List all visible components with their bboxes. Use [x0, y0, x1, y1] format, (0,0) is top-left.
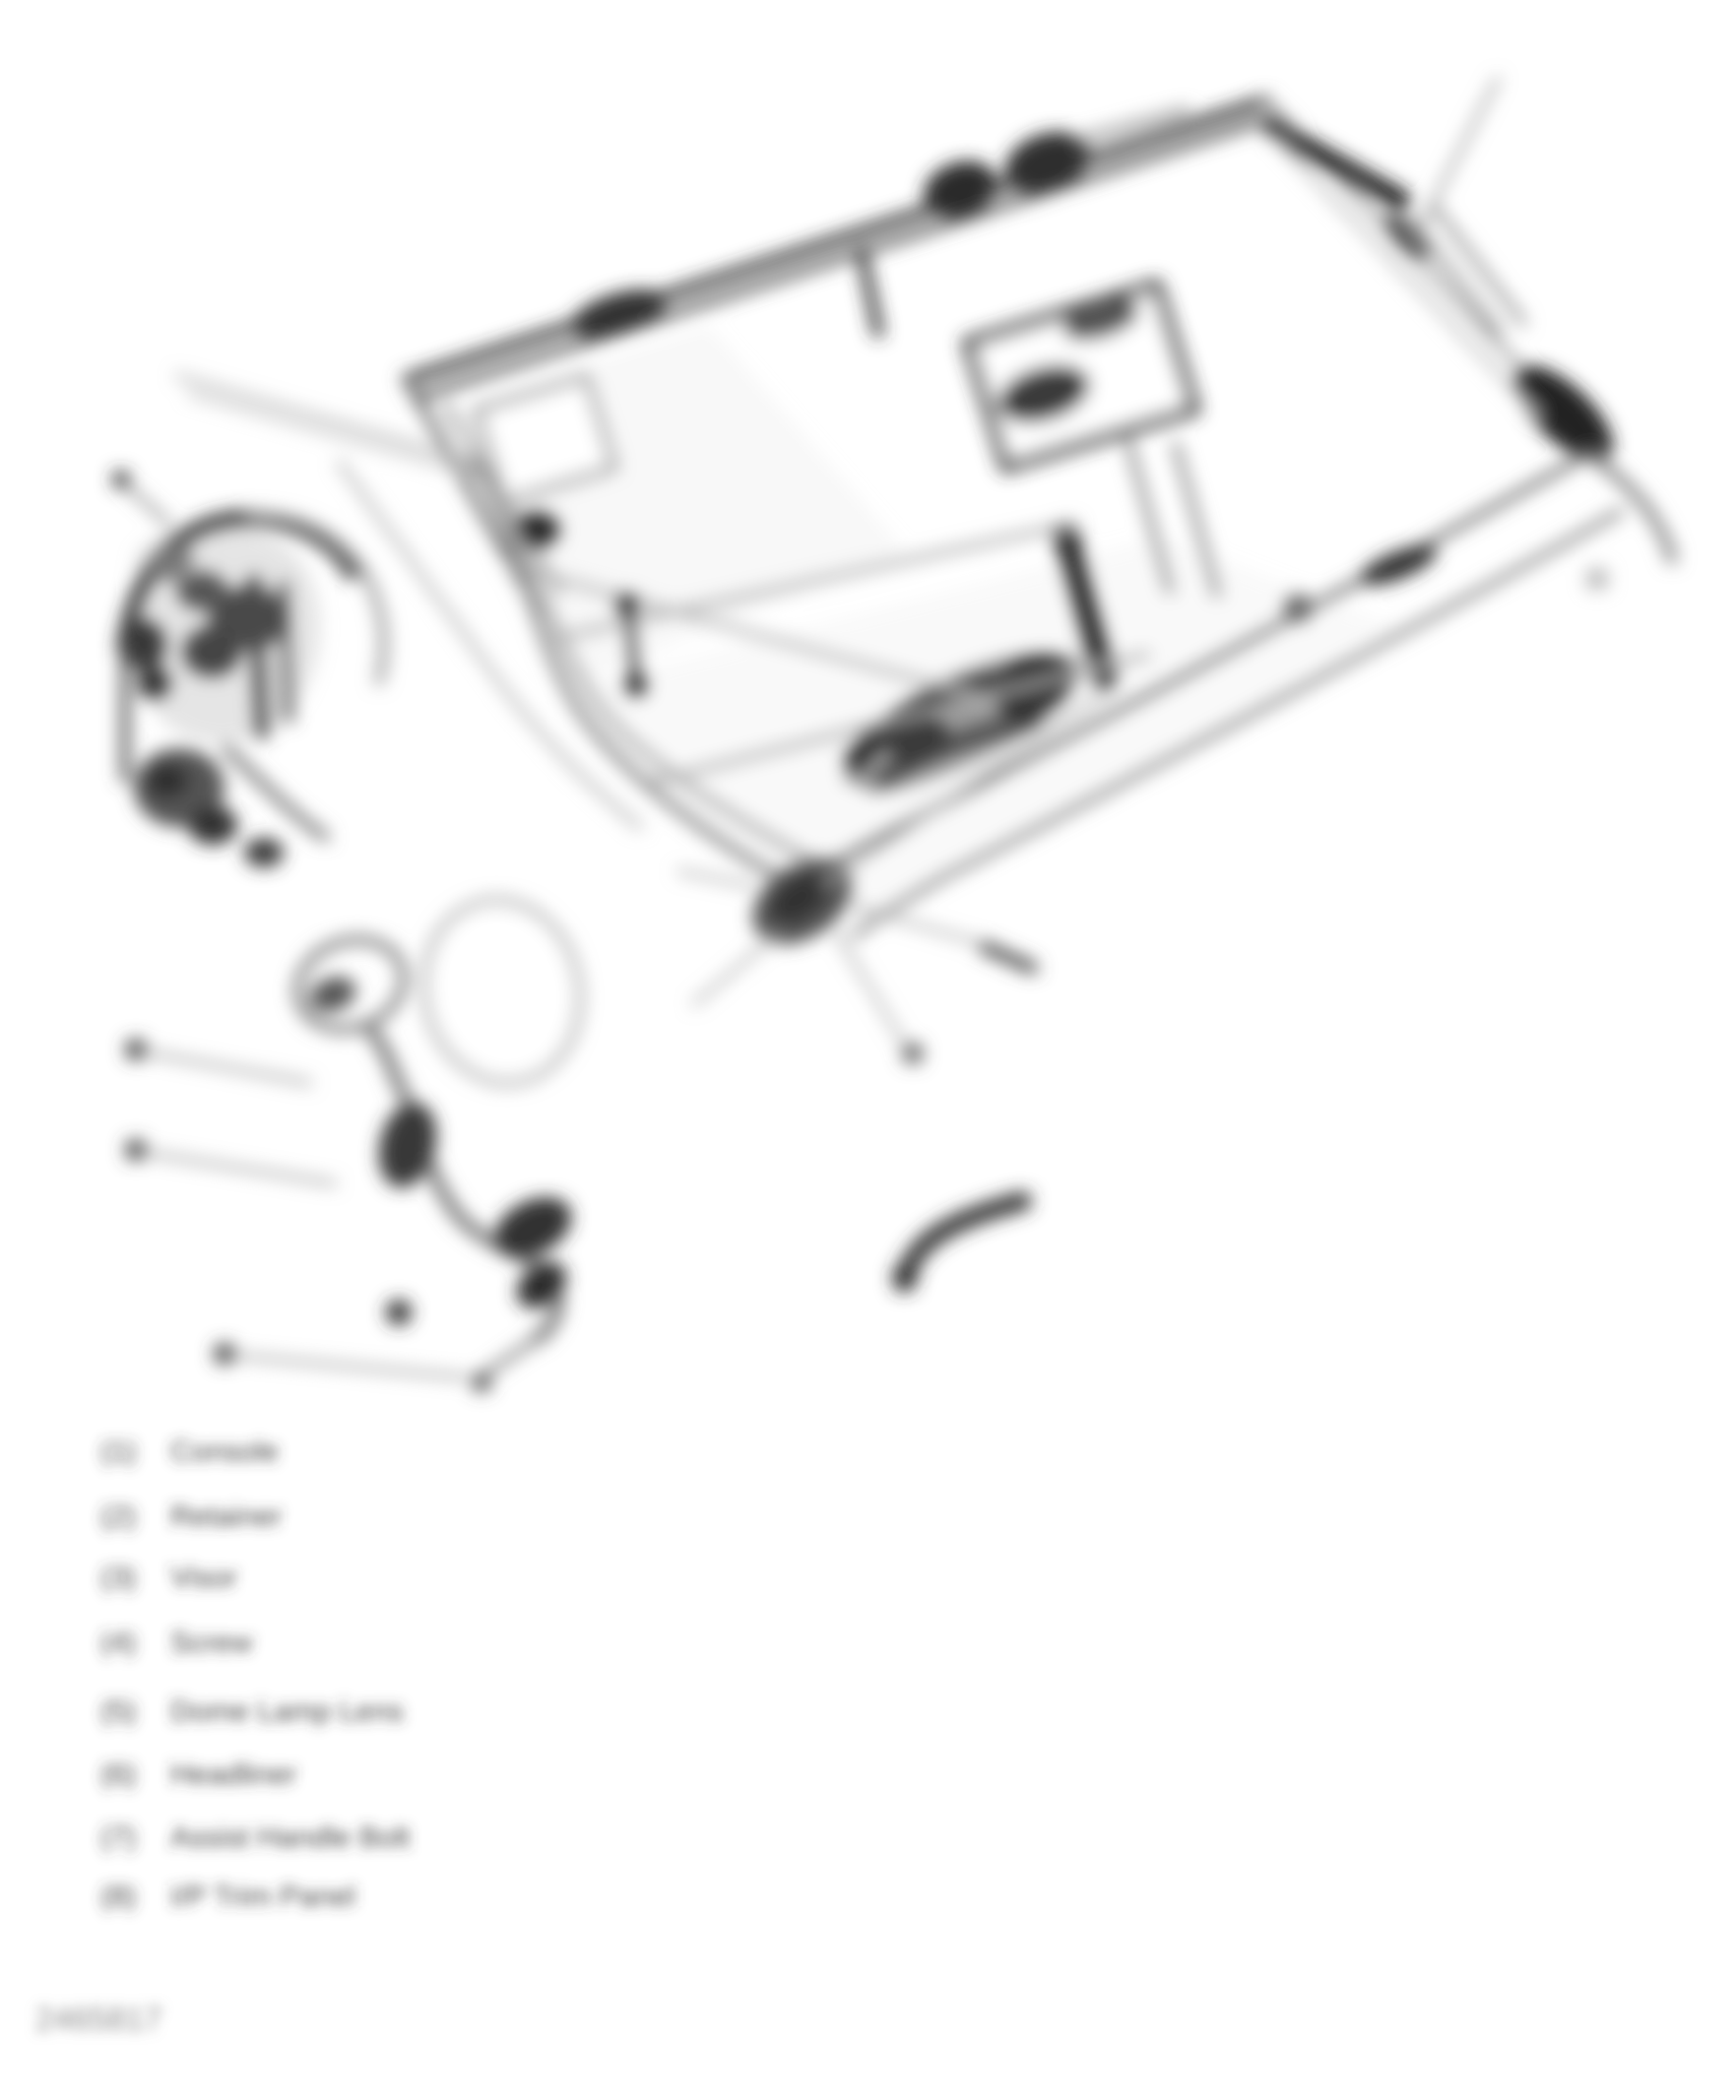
svg-text:Headliner: Headliner	[170, 1758, 296, 1791]
svg-text:Retainer: Retainer	[170, 1500, 282, 1533]
svg-text:(5): (5)	[100, 1695, 137, 1728]
svg-text:(7): (7)	[100, 1821, 137, 1854]
svg-text:I/P Trim Panel: I/P Trim Panel	[170, 1880, 355, 1913]
svg-text:(3): (3)	[100, 1561, 137, 1594]
svg-text:Screw: Screw	[170, 1626, 253, 1659]
svg-text:(4): (4)	[100, 1626, 137, 1659]
svg-text:2465817: 2465817	[35, 2001, 161, 2037]
svg-text:(1): (1)	[100, 1435, 137, 1468]
svg-text:Console: Console	[170, 1435, 279, 1468]
svg-text:Dome Lamp Lens: Dome Lamp Lens	[170, 1695, 404, 1728]
svg-text:(8): (8)	[100, 1880, 137, 1913]
svg-text:Assist Handle Bolt: Assist Handle Bolt	[170, 1821, 411, 1854]
svg-text:(2): (2)	[100, 1500, 137, 1533]
svg-text:Visor: Visor	[170, 1561, 237, 1594]
svg-text:(6): (6)	[100, 1758, 137, 1791]
